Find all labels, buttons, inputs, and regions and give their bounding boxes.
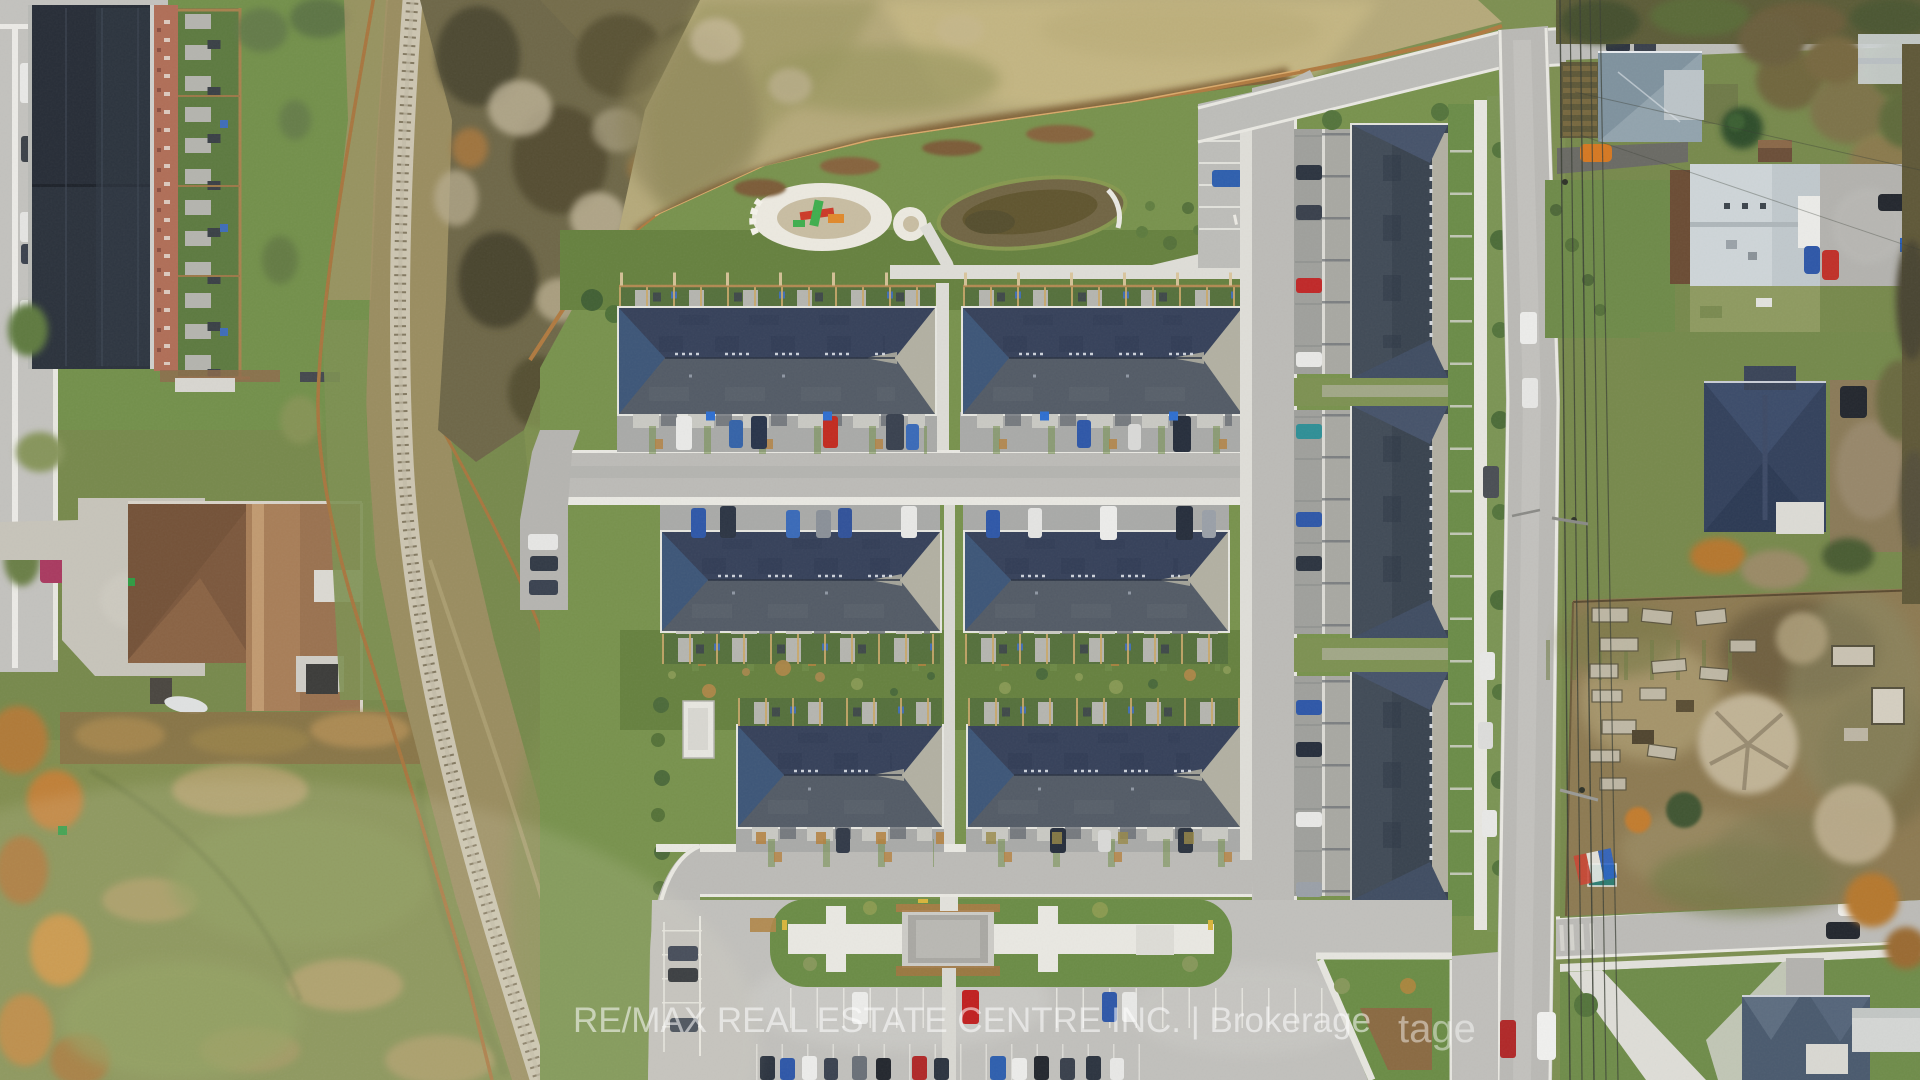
svg-text:RE/MAX REAL ESTATE CENTRE INC.: RE/MAX REAL ESTATE CENTRE INC. | Brokera… [573, 1001, 1371, 1040]
svg-text:tage: tage [1398, 1007, 1476, 1051]
